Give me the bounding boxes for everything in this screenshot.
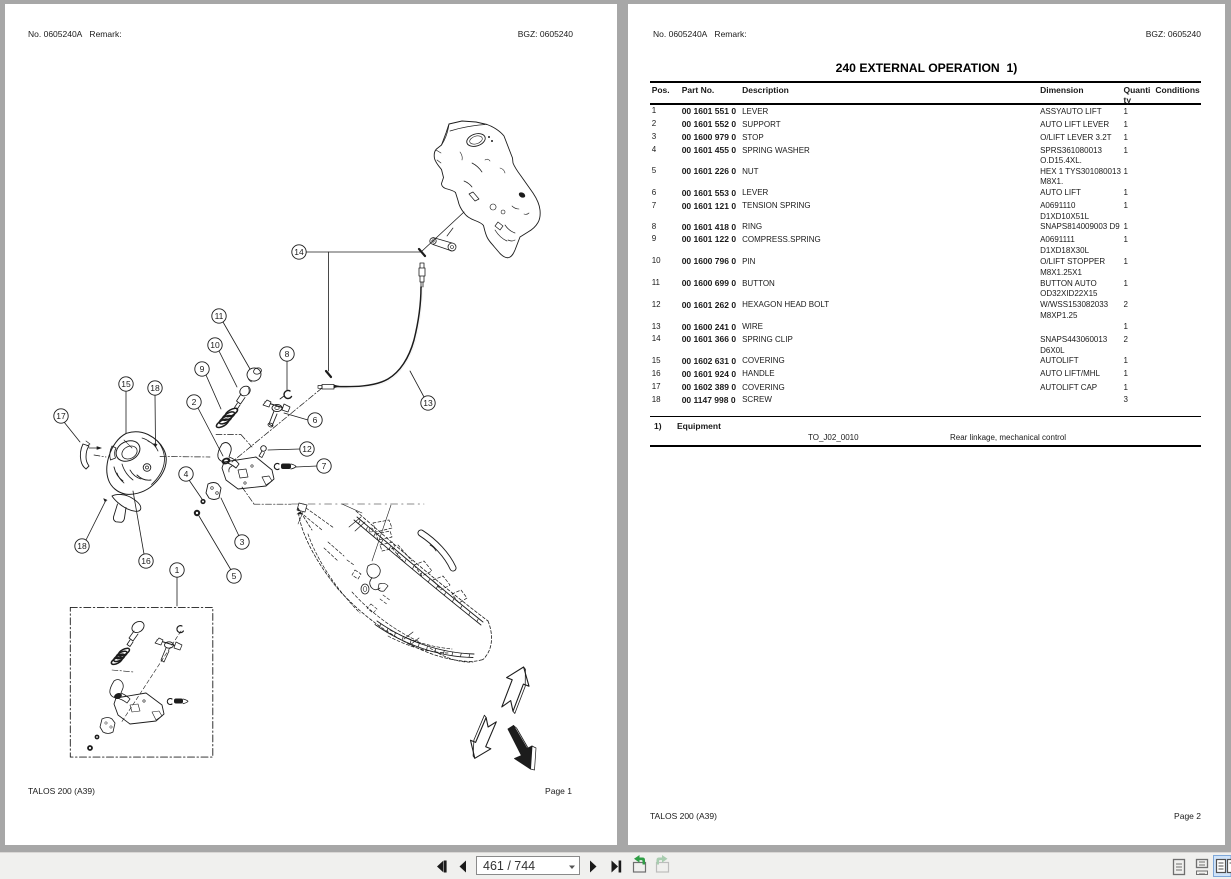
svg-text:10: 10 [210,340,220,350]
svg-text:5: 5 [232,571,237,581]
svg-text:8: 8 [285,349,290,359]
svg-text:9: 9 [200,364,205,374]
svg-text:7: 7 [322,461,327,471]
svg-text:17: 17 [56,411,66,421]
svg-text:15: 15 [121,379,131,389]
svg-text:1: 1 [175,565,180,575]
svg-text:14: 14 [294,247,304,257]
svg-text:6: 6 [313,415,318,425]
svg-text:18: 18 [150,383,160,393]
svg-text:13: 13 [423,398,433,408]
svg-text:461 / 744: 461 / 744 [483,859,535,873]
svg-text:11: 11 [215,311,224,321]
svg-text:16: 16 [141,556,151,566]
svg-text:2: 2 [192,397,197,407]
svg-text:4: 4 [184,469,189,479]
svg-text:3: 3 [240,537,245,547]
svg-text:18: 18 [77,541,87,551]
svg-text:12: 12 [302,444,312,454]
